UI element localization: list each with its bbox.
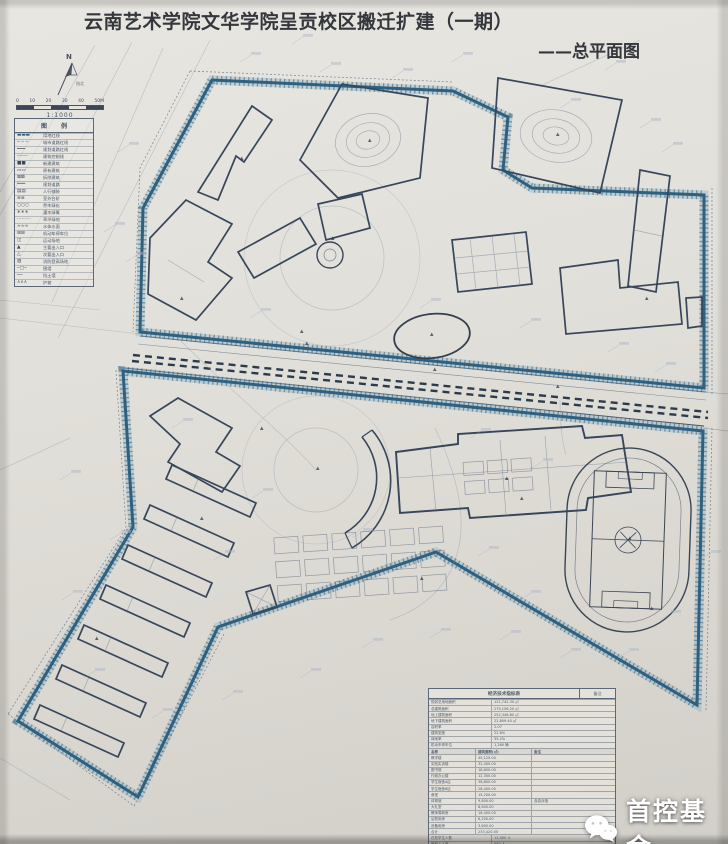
legend-item: ▤▤人行铺装 bbox=[15, 188, 93, 195]
table-cell: 36,800.00 bbox=[475, 780, 531, 785]
legend-item-label: 建筑控制线 bbox=[43, 155, 92, 160]
table-header-row: 名称建筑面积(㎡)备注 bbox=[429, 748, 615, 754]
table-row: 学生宿舍B区28,400.00 bbox=[429, 785, 615, 791]
table-row: 绿地率35.2% bbox=[429, 736, 615, 742]
legend-title: 图 例 bbox=[15, 119, 93, 133]
scale-tick: 30 bbox=[62, 99, 68, 104]
table-cell: 食堂 bbox=[429, 792, 475, 797]
table-cell: 绿地率 bbox=[429, 737, 491, 742]
legend-item: ▨消防登高场地 bbox=[15, 258, 93, 265]
table-cell: 28,400.00 bbox=[475, 786, 531, 791]
legend-symbol: ⋯⋯⋯ bbox=[17, 218, 43, 223]
table-cell bbox=[531, 780, 615, 785]
legend-item-label: 草坪绿地 bbox=[43, 218, 92, 223]
scale-tick: 40 bbox=[78, 99, 84, 104]
legend-symbol: △ bbox=[17, 253, 43, 258]
legend-symbol: ∗∗∗ bbox=[17, 211, 43, 216]
legend-item: ∗∗∗灌木绿篱 bbox=[15, 209, 93, 216]
legend-item: ▲主要出入口 bbox=[15, 244, 93, 251]
table-cell: 9,800.00 bbox=[475, 799, 531, 804]
table-cell: 名称 bbox=[429, 749, 475, 754]
legend-item-label: 运动场地 bbox=[43, 239, 92, 244]
table-row: 实验实训楼32,400.00 bbox=[429, 761, 615, 767]
legend-symbol: ─□─ bbox=[17, 267, 43, 272]
legend-item-label: 用地红线 bbox=[43, 134, 92, 139]
scale-tick: 0 bbox=[16, 99, 19, 104]
plot-grid bbox=[270, 458, 540, 602]
table-cell bbox=[531, 768, 615, 773]
table-row: 规划总用地面积121,742.30 ㎡ bbox=[429, 699, 615, 705]
legend-symbol: ═══ bbox=[17, 183, 43, 188]
table-cell: 学生宿舍A区 bbox=[429, 780, 475, 785]
legend-box: 图 例 ▬▬▬用地红线─ ─ ─城市道路红线━━━规划道路红线╌╌╌╌建筑控制线… bbox=[14, 118, 94, 287]
legend-item: ◫运动场地 bbox=[15, 237, 93, 244]
table-row: 总建筑面积275,156.20 ㎡ bbox=[429, 705, 615, 711]
table-row: 图书馆18,600.00 bbox=[429, 767, 615, 773]
legend-symbol: ⊠⊠ bbox=[17, 176, 43, 181]
legend-item-label: 人行铺装 bbox=[43, 190, 92, 195]
scale-ticks: 01020304050M bbox=[16, 99, 104, 104]
table-cell: 规划总用地面积 bbox=[429, 700, 491, 705]
courtyard-contours bbox=[168, 104, 662, 290]
table-cell: 8,600.00 bbox=[475, 805, 531, 810]
table-cell: 35.2% bbox=[491, 737, 615, 742]
legend-item: ╌╌╌╌建筑控制线 bbox=[15, 153, 93, 160]
table-cell: 后勤用房 bbox=[429, 817, 475, 822]
legend-item-label: 水体水面 bbox=[43, 225, 92, 230]
legend-symbol: ▤▤ bbox=[17, 190, 43, 195]
table-cell: 15,200.00 bbox=[475, 792, 531, 797]
table-cell bbox=[531, 774, 615, 779]
table-row: 机动车停车位1,260 辆 bbox=[429, 742, 615, 748]
table-cell: 建筑密度 bbox=[429, 731, 491, 736]
table-row: 建筑密度22.6% bbox=[429, 730, 615, 736]
north-label: N bbox=[66, 53, 72, 61]
legend-item-label: 护坡 bbox=[43, 281, 92, 286]
table-cell: 大礼堂 bbox=[429, 805, 475, 810]
legend-symbol: ≈≈≈ bbox=[17, 225, 43, 230]
legend-symbol: ○○○ bbox=[17, 204, 43, 209]
boundary-upper bbox=[140, 80, 704, 388]
table-cell: 18,600.00 bbox=[475, 768, 531, 773]
table-cell: 3,600.00 bbox=[475, 823, 531, 828]
legend-symbol: ▭▭ bbox=[17, 169, 43, 174]
legend-item: ─□─围墙 bbox=[15, 265, 93, 272]
table-cell: 12,300.00 bbox=[475, 774, 531, 779]
legend-item-label: 原有建筑 bbox=[43, 169, 92, 174]
table-cell: 实验实训楼 bbox=[429, 762, 475, 767]
scale-tick: 50M bbox=[94, 99, 104, 104]
legend-item-label: 规划道路红线 bbox=[43, 148, 92, 153]
upper-buildings bbox=[148, 78, 702, 334]
table-cell: 图书馆 bbox=[429, 768, 475, 773]
legend-symbol: ▲ bbox=[17, 246, 43, 251]
table-row: 容积率2.07 bbox=[429, 724, 615, 730]
page-title: 云南艺术学院文华学院呈贡校区搬迁扩建（一期） bbox=[84, 7, 584, 34]
table-cell: 6,200.00 bbox=[475, 817, 531, 822]
table-cell bbox=[531, 755, 615, 760]
legend-item: ⊞⊞机动车停车位 bbox=[15, 230, 93, 237]
legend-item-label: 灌木绿篱 bbox=[43, 211, 92, 216]
legend-item-label: 挡土墙 bbox=[43, 274, 92, 279]
legend-item-label: 城市道路红线 bbox=[43, 141, 92, 146]
legend-item-label: 室外台阶 bbox=[43, 197, 92, 202]
legend-item: ≣≣室外台阶 bbox=[15, 195, 93, 202]
site-plan-drawing bbox=[0, 0, 728, 844]
legend-item: ⋯⋯⋯草坪绿地 bbox=[15, 216, 93, 223]
table-cell: 地上建筑面积 bbox=[429, 712, 491, 717]
table-cell: 32,400.00 bbox=[475, 762, 531, 767]
table-cell: 16,400.00 bbox=[475, 811, 531, 816]
table-cell bbox=[531, 786, 615, 791]
legend-rows: ▬▬▬用地红线─ ─ ─城市道路红线━━━规划道路红线╌╌╌╌建筑控制线■■新建… bbox=[15, 133, 93, 286]
table-cell: 教学楼 bbox=[429, 755, 475, 760]
legend-item-label: 次要出入口 bbox=[43, 253, 92, 258]
legend-item: △次要出入口 bbox=[15, 251, 93, 258]
legend-item: ⊠⊠拆除建筑 bbox=[15, 174, 93, 181]
legend-item: ∧∧∧护坡 bbox=[15, 279, 93, 286]
indicator-table-note-header: 备注 bbox=[579, 689, 615, 698]
legend-item-label: 拆除建筑 bbox=[43, 176, 92, 181]
legend-item: ▭▭原有建筑 bbox=[15, 167, 93, 174]
table-cell: 合计 bbox=[429, 829, 475, 834]
table-cell: 252,346.80 ㎡ bbox=[491, 712, 615, 717]
legend-item: ▬▬▬用地红线 bbox=[15, 133, 93, 140]
table-cell: 设备用房 bbox=[429, 823, 475, 828]
legend-item: ○○○乔木绿化 bbox=[15, 202, 93, 209]
north-arrow-icon bbox=[44, 55, 90, 101]
table-cell: 机动车停车位 bbox=[429, 743, 491, 748]
table-cell: 总建筑面积 bbox=[429, 706, 491, 711]
legend-item-label: 规划道路 bbox=[43, 183, 92, 188]
scale-tick: 20 bbox=[46, 99, 52, 104]
table-cell: 2.07 bbox=[491, 725, 615, 730]
legend-symbol: ≣≣ bbox=[17, 197, 43, 202]
table-cell: 容积率 bbox=[429, 725, 491, 730]
legend-symbol: ▨ bbox=[17, 260, 43, 265]
table-cell: 行政办公楼 bbox=[429, 774, 475, 779]
table-cell: 教师周转房 bbox=[429, 811, 475, 816]
legend-item-label: 围墙 bbox=[43, 267, 92, 272]
table-cell: 体育馆 bbox=[429, 799, 475, 804]
north-arrow: N 指北 bbox=[44, 55, 90, 101]
legend-symbol: ⊞⊞ bbox=[17, 232, 43, 237]
table-cell: 22,809.40 ㎡ bbox=[491, 718, 615, 723]
watermark-text: 首控基金 bbox=[626, 792, 728, 844]
scale-bar: 01020304050M 1:1000 bbox=[16, 99, 104, 119]
table-row: 教学楼45,120.00 bbox=[429, 754, 615, 760]
legend-symbol: ■■ bbox=[17, 162, 43, 167]
legend-item-label: 新建建筑 bbox=[43, 162, 92, 167]
legend-item-label: 乔木绿化 bbox=[43, 204, 92, 209]
legend-symbol: ∧∧∧ bbox=[17, 281, 43, 286]
legend-item: ≈≈≈水体水面 bbox=[15, 223, 93, 230]
terrain-lines bbox=[0, 40, 640, 800]
legend-item: ─ ─ ─城市道路红线 bbox=[15, 139, 93, 146]
table-cell: 学生宿舍B区 bbox=[429, 786, 475, 791]
table-row: 地下建筑面积22,809.40 ㎡ bbox=[429, 717, 615, 723]
page-subtitle: ——总平面图 bbox=[538, 37, 688, 62]
legend-symbol: ╌╌╌╌ bbox=[17, 155, 43, 160]
wechat-icon bbox=[584, 813, 618, 844]
table-row: 行政办公楼12,300.00 bbox=[429, 773, 615, 779]
table-cell: 121,742.30 ㎡ bbox=[491, 700, 615, 705]
table-cell: 45,120.00 bbox=[475, 755, 531, 760]
legend-item: ■■新建建筑 bbox=[15, 160, 93, 167]
table-row: 学生宿舍A区36,800.00 bbox=[429, 779, 615, 785]
table-cell: 1,260 辆 bbox=[491, 743, 615, 748]
legend-symbol: ▬▬▬ bbox=[17, 134, 43, 139]
table-cell: 22.6% bbox=[491, 731, 615, 736]
legend-item-label: 主要出入口 bbox=[43, 246, 92, 251]
legend-item-label: 机动车停车位 bbox=[43, 232, 92, 237]
table-cell: 地下建筑面积 bbox=[429, 718, 491, 723]
table-cell: 在校学生人数 bbox=[429, 835, 491, 840]
table-cell: 275,156.20 ㎡ bbox=[491, 706, 615, 711]
table-cell bbox=[531, 762, 615, 767]
watermark: 首控基金 bbox=[584, 792, 728, 844]
scale-tick: 10 bbox=[29, 99, 35, 104]
legend-symbol: ━━━ bbox=[17, 148, 43, 153]
indicator-table-title: 经济技术指标表 bbox=[429, 689, 579, 698]
legend-item-label: 消防登高场地 bbox=[43, 260, 92, 265]
table-cell: 233,420.00 bbox=[475, 829, 531, 834]
legend-symbol: ┉┉ bbox=[17, 274, 43, 279]
scale-bar-segments bbox=[16, 105, 104, 110]
legend-symbol: ─ ─ ─ bbox=[17, 141, 43, 146]
legend-item: ═══规划道路 bbox=[15, 181, 93, 188]
north-caption: 指北 bbox=[76, 81, 84, 87]
table-cell: 建筑面积(㎡) bbox=[475, 749, 531, 754]
site-plan-photo: 云南艺术学院文华学院呈贡校区搬迁扩建（一期） ——总平面图 N 指北 01020… bbox=[0, 0, 728, 844]
legend-item: ━━━规划道路红线 bbox=[15, 146, 93, 153]
table-cell: 备注 bbox=[531, 749, 615, 754]
legend-item: ┉┉挡土墙 bbox=[15, 272, 93, 279]
legend-symbol: ◫ bbox=[17, 239, 43, 244]
table-row: 地上建筑面积252,346.80 ㎡ bbox=[429, 711, 615, 717]
